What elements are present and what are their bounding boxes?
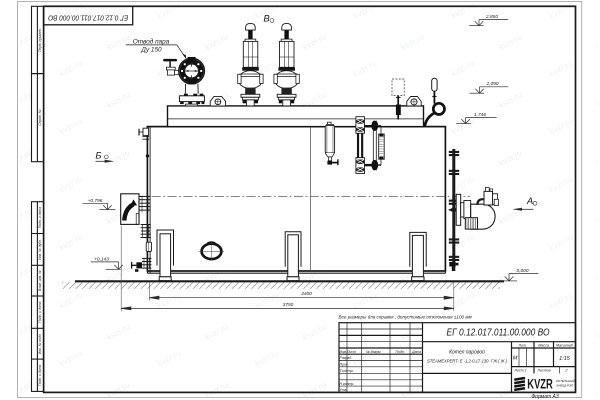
- svg-text:Инв. № дубл.: Инв. № дубл.: [38, 239, 42, 260]
- svg-text:3400: 3400: [301, 291, 312, 297]
- svg-text:ЗАВОД РЭП: ЗАВОД РЭП: [556, 384, 574, 388]
- svg-text:Перв. примен.: Перв. примен.: [38, 28, 42, 52]
- svg-text:1:15: 1:15: [559, 356, 571, 362]
- svg-text:+0,796: +0,796: [88, 198, 103, 204]
- svg-text:№ докум.: № докум.: [366, 350, 381, 354]
- svg-text:Инв. № подл.: Инв. № подл.: [38, 333, 42, 354]
- svg-text:Формат А3: Формат А3: [531, 394, 559, 400]
- svg-text:Ду 150: Ду 150: [140, 47, 162, 54]
- svg-text:В: В: [263, 13, 270, 24]
- svg-text:2,090: 2,090: [485, 81, 498, 87]
- svg-text:+0,143: +0,143: [94, 257, 109, 263]
- svg-text:Дата: Дата: [411, 350, 421, 354]
- svg-text:А: А: [526, 196, 533, 207]
- svg-text:Пров.: Пров.: [340, 362, 349, 366]
- svg-text:STEAMEXPERT- E -1,2-0,17-130-: STEAMEXPERT- E -1,2-0,17-130- ГЖ ( Ж ): [427, 358, 508, 363]
- svg-text:Подп. и дата: Подп. и дата: [38, 364, 42, 385]
- svg-text:М: М: [513, 356, 518, 362]
- svg-text:1,746: 1,746: [474, 112, 486, 118]
- svg-text:Лист 1: Лист 1: [514, 369, 527, 373]
- svg-text:Подп. и дата: Подп. и дата: [38, 207, 42, 228]
- svg-text:Изм.Лист: Изм.Лист: [340, 350, 357, 354]
- svg-text:Б: Б: [95, 151, 101, 162]
- svg-text:ЕГ 0.12.017.011.00.000 ВО: ЕГ 0.12.017.011.00.000 ВО: [48, 14, 128, 23]
- svg-text:Разраб.: Разраб.: [340, 356, 353, 360]
- svg-text:3750: 3750: [283, 302, 294, 308]
- svg-text:0,000: 0,000: [516, 268, 528, 274]
- svg-text:Т.контр.: Т.контр.: [340, 369, 354, 373]
- svg-text:Листов: Листов: [537, 369, 551, 373]
- svg-text:Отвод пара: Отвод пара: [133, 37, 170, 45]
- svg-text:Справ. №: Справ. №: [38, 109, 42, 125]
- svg-text:Н.контр.: Н.контр.: [340, 382, 355, 386]
- svg-text:KVZR: KVZR: [527, 376, 553, 391]
- svg-text:КОТЕЛЬНЫЙ: КОТЕЛЬНЫЙ: [556, 379, 576, 383]
- svg-text:Взам. инв. №: Взам. инв. №: [38, 270, 42, 291]
- svg-text:Лит.: Лит.: [517, 343, 526, 347]
- svg-text:Утв.: Утв.: [340, 388, 348, 392]
- svg-text:ЕГ 0.12.017.011.00.000 ВО: ЕГ 0.12.017.011.00.000 ВО: [447, 328, 550, 339]
- svg-text:2,850: 2,850: [485, 14, 498, 20]
- svg-text:2: 2: [565, 369, 568, 373]
- svg-text:Масса: Масса: [538, 343, 549, 347]
- svg-text:Подп.: Подп.: [396, 350, 405, 354]
- svg-text:Масштаб: Масштаб: [556, 343, 574, 347]
- svg-text:Котел паровой: Котел паровой: [449, 349, 485, 356]
- svg-text:Все размеры для справок , допу: Все размеры для справок , допустимые отк…: [339, 314, 473, 319]
- svg-text:Подп. и дата: Подп. и дата: [38, 301, 42, 322]
